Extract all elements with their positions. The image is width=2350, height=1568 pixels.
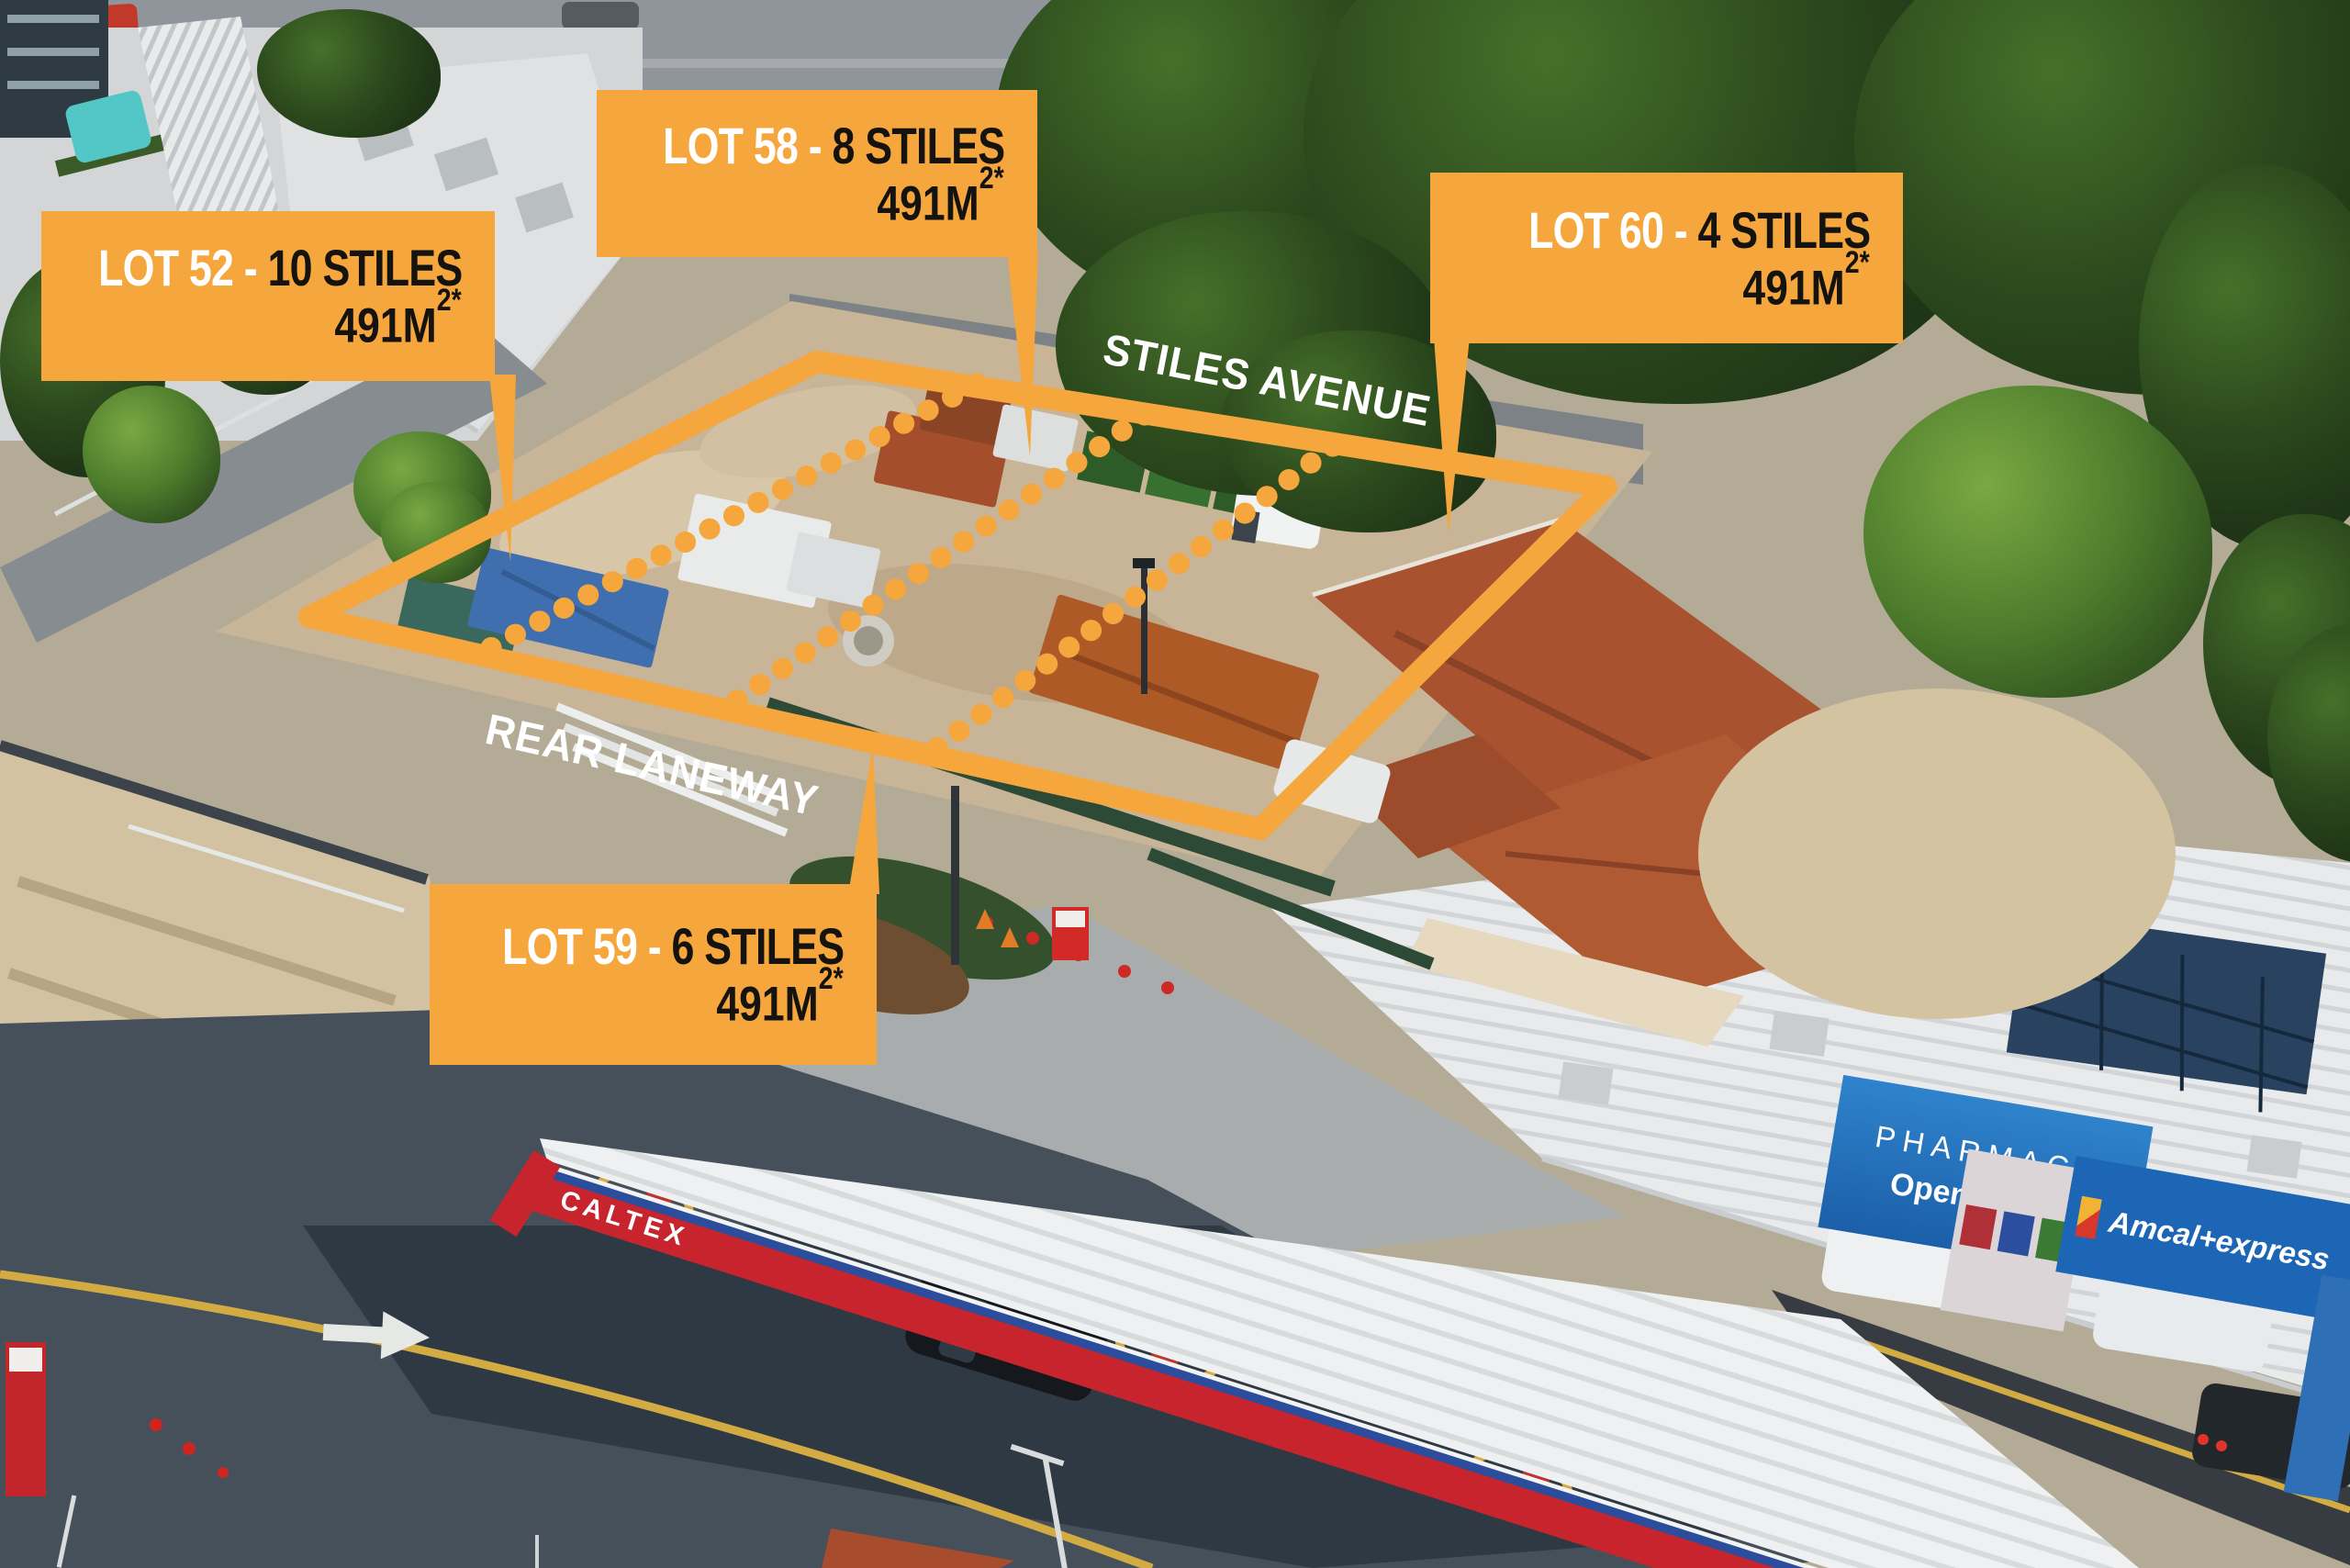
lot60-pointer: [1434, 338, 1470, 534]
lot60-title: LOT 60 - 4 STILES: [1528, 204, 1870, 258]
lot-division-dotted: [928, 446, 1333, 755]
aerial-photo-scene: CALTEX PHARMACY Open 7 days Amcal+expres…: [0, 0, 2350, 1568]
lot59-pointer: [848, 745, 879, 894]
lot58-area: 491M2*: [878, 177, 1004, 229]
lot59-title: LOT 59 - 6 STILES: [502, 920, 844, 974]
lot59-area: 491M2*: [717, 978, 844, 1029]
lot58-title: LOT 58 - 8 STILES: [663, 119, 1004, 174]
lot-division-dotted: [725, 415, 1145, 709]
lot52-label: LOT 52 - 10 STILES 491M2*: [41, 211, 495, 381]
lot60-label: LOT 60 - 4 STILES 491M2*: [1430, 173, 1903, 343]
lot58-pointer: [1007, 253, 1038, 456]
lot59-label: LOT 59 - 6 STILES 491M2*: [430, 884, 877, 1065]
lot60-area: 491M2*: [1743, 262, 1870, 313]
lot52-title: LOT 52 - 10 STILES: [98, 241, 462, 296]
lot52-area: 491M2*: [335, 299, 462, 351]
lot58-label: LOT 58 - 8 STILES 491M2*: [597, 90, 1037, 257]
lot-division-dotted: [480, 384, 977, 654]
